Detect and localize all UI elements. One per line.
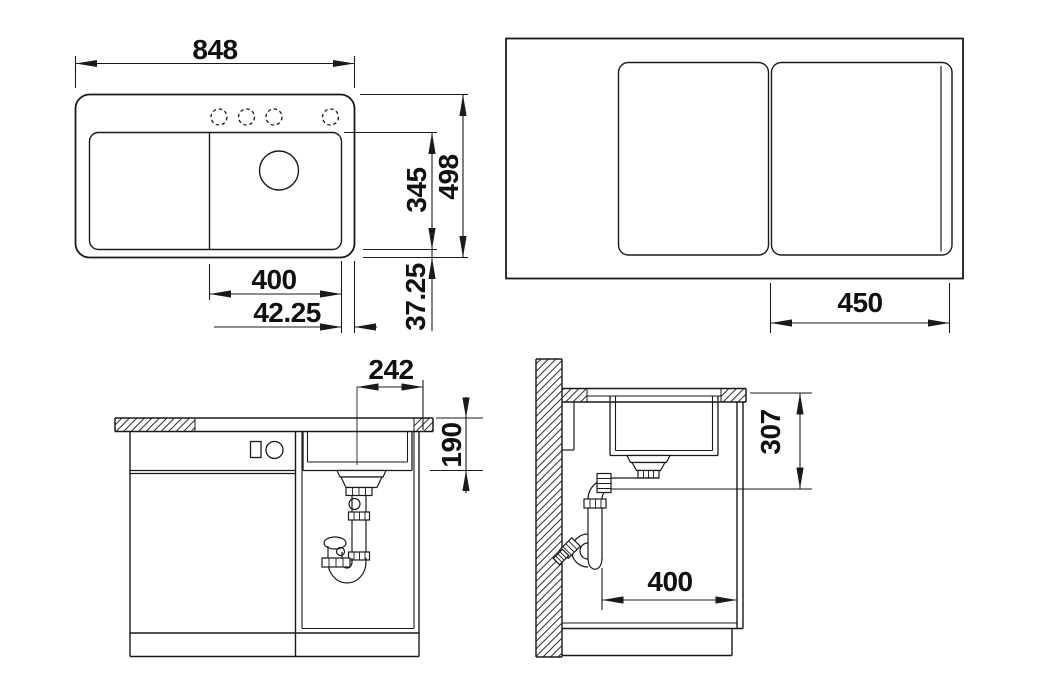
sink-bowl-front [303,387,412,471]
drain-trap-side [553,456,812,570]
dim-overall-width-848: 848 [192,36,237,64]
wall-section [536,359,562,657]
dim-bowl-depth-345: 345 [403,167,431,212]
side-section-view [536,359,812,657]
sink-outer-edge [76,95,355,258]
dim-bowl-edge-offset-37-25: 37.25 [402,263,430,331]
dim-overall-depth-498: 498 [435,154,463,199]
dishwasher-front [130,442,296,474]
drain-hole [260,151,299,190]
drain-trap-front [322,471,386,584]
dim-bowl-height-190: 190 [438,422,466,467]
dishwasher-display [251,442,262,458]
cover-plan-view [506,39,963,334]
counter-cut-front-side [721,389,746,403]
dim-cover-width-450: 450 [837,289,882,317]
dishwasher-knob [266,442,283,459]
dim-lines-242 [357,380,423,430]
sink-bowl-area [90,133,342,250]
tap-hole [211,109,227,125]
base-cabinet-front [130,432,419,657]
sink-bowl-side [587,396,721,456]
dim-bowl-width-400: 400 [251,266,296,294]
dim-clearance-depth-400: 400 [647,568,692,596]
counter-cut-left [115,418,195,432]
tap-hole [239,109,255,125]
tap-holes [211,109,339,125]
front-section-view [115,380,483,657]
cover-right [772,63,953,256]
counter-cut-wall-side [562,389,587,403]
wall-batten [562,402,574,450]
base-cabinet-side [562,402,743,656]
dim-drain-offset-242: 242 [368,356,413,384]
technical-drawing-canvas: 848 345 498 400 42.25 37.25 450 242 190 … [0,0,1044,696]
dim-outlet-height-307: 307 [757,409,785,454]
tap-hole [266,109,282,125]
drawing-linework [0,0,1044,696]
cover-left [619,63,769,256]
tap-hole [323,109,339,125]
countertop-outline [506,39,963,279]
dim-bowl-edge-offset-42-25: 42.25 [253,299,321,327]
